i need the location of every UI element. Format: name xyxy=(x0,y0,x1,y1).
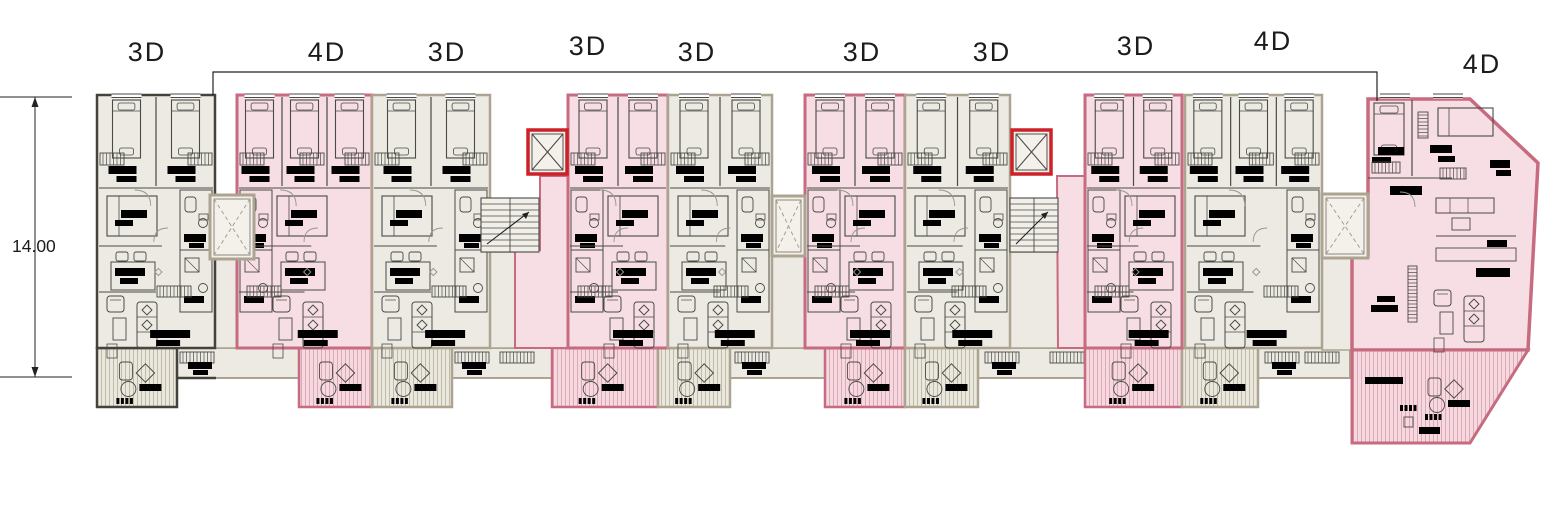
redacted-label xyxy=(391,398,394,404)
redacted-label xyxy=(1208,278,1226,284)
redacted-label xyxy=(931,398,934,404)
window xyxy=(1143,93,1173,99)
balcony-deck xyxy=(825,348,905,407)
redacted-label xyxy=(1244,176,1264,182)
redacted-label xyxy=(332,166,360,174)
unit-plan-3d-0 xyxy=(97,93,215,359)
redacted-label xyxy=(984,243,999,248)
redacted-label xyxy=(1247,330,1287,338)
redacted-label xyxy=(812,234,834,242)
redacted-label xyxy=(291,210,317,218)
floor-plan: 14.003D4D3D3D3D3D3D3D4D4D xyxy=(0,0,1553,530)
unit-plan-4d-8 xyxy=(1185,93,1322,359)
bed xyxy=(113,100,141,158)
balcony-deck xyxy=(1182,348,1258,407)
window xyxy=(1380,93,1410,99)
dim-arrow-up xyxy=(32,97,39,107)
redacted-label xyxy=(321,398,324,404)
redacted-label xyxy=(862,166,890,174)
window xyxy=(290,93,320,99)
redacted-label xyxy=(1496,170,1511,176)
redacted-label xyxy=(121,398,124,404)
redacted-label xyxy=(684,176,704,182)
balcony-deck xyxy=(372,348,452,407)
dim-arrow-down xyxy=(32,367,39,377)
redacted-label xyxy=(130,398,133,404)
window xyxy=(1433,93,1463,99)
redacted-label xyxy=(686,220,704,226)
window xyxy=(1284,93,1314,99)
redacted-label xyxy=(390,220,408,226)
elevator-shaft xyxy=(1322,194,1368,258)
balcony-pink xyxy=(299,348,372,407)
redacted-label xyxy=(728,166,756,174)
window xyxy=(815,93,845,99)
redacted-label xyxy=(1118,398,1121,404)
redacted-label xyxy=(1377,296,1395,302)
redacted-label xyxy=(339,384,361,391)
redacted-label xyxy=(250,176,270,182)
redacted-label xyxy=(340,176,360,182)
bed xyxy=(1144,100,1172,158)
bed xyxy=(1194,100,1222,158)
redacted-label xyxy=(1114,398,1117,404)
floor-plan-svg: 14.003D4D3D3D3D3D3D3D4D4D xyxy=(0,0,1553,530)
redacted-label xyxy=(936,398,939,404)
redacted-label xyxy=(583,398,586,404)
redacted-label xyxy=(1365,377,1403,384)
redacted-label xyxy=(844,398,847,404)
unit-type-label: 3D xyxy=(973,37,1012,67)
balcony-deck xyxy=(552,348,658,407)
redacted-label xyxy=(698,384,720,391)
redacted-label xyxy=(746,243,761,248)
redacted-label xyxy=(400,398,403,404)
redacted-label xyxy=(1200,398,1203,404)
redacted-label xyxy=(1223,384,1245,391)
redacted-label xyxy=(139,384,161,391)
redacted-label xyxy=(974,176,994,182)
elevator-shaft-red xyxy=(528,130,567,174)
redacted-label xyxy=(958,340,982,346)
bed xyxy=(732,100,760,158)
redacted-label xyxy=(168,166,196,174)
dimension-label: 14.00 xyxy=(12,236,56,256)
redacted-label xyxy=(619,340,643,346)
redacted-label xyxy=(575,234,597,242)
redacted-label xyxy=(1133,220,1151,226)
bed xyxy=(388,100,416,158)
redacted-label xyxy=(431,340,455,346)
balcony-deck xyxy=(905,348,978,407)
redacted-label xyxy=(1487,240,1507,247)
unit-type-label: 3D xyxy=(678,37,717,67)
redacted-label xyxy=(923,268,953,276)
unit-type-label: 4D xyxy=(308,37,347,67)
redacted-label xyxy=(1476,268,1510,277)
redacted-label xyxy=(1209,210,1235,218)
balcony xyxy=(658,348,730,407)
redacted-label xyxy=(992,362,1016,369)
redacted-label xyxy=(1434,414,1437,420)
redacted-label xyxy=(285,220,303,226)
bed xyxy=(866,100,894,158)
redacted-label xyxy=(858,398,861,404)
dimension: 14.00 xyxy=(0,97,72,377)
redacted-label xyxy=(462,362,486,369)
redacted-label xyxy=(928,278,946,284)
redacted-label xyxy=(747,370,762,375)
window xyxy=(112,93,142,99)
redacted-label xyxy=(290,278,308,284)
unit-plan-3d-5 xyxy=(805,93,905,359)
bed xyxy=(336,100,364,158)
redacted-label xyxy=(1148,176,1168,182)
elevator-shaft xyxy=(772,196,805,256)
redacted-label xyxy=(121,210,147,218)
redacted-label xyxy=(109,166,137,174)
redacted-label xyxy=(622,210,648,218)
staircase xyxy=(481,198,539,252)
redacted-label xyxy=(384,166,412,174)
redacted-label xyxy=(396,398,399,404)
elevator-shaft-red xyxy=(1012,130,1051,174)
redacted-label xyxy=(1138,278,1156,284)
bed xyxy=(917,100,945,158)
redacted-label xyxy=(676,166,704,174)
redacted-label xyxy=(1414,405,1417,411)
redacted-label xyxy=(1129,330,1169,338)
corridor-pink xyxy=(1057,176,1085,348)
redacted-label xyxy=(1198,176,1218,182)
redacted-label xyxy=(1272,362,1296,369)
redacted-label xyxy=(592,398,595,404)
window xyxy=(245,93,275,99)
redacted-label xyxy=(1490,160,1510,168)
redacted-label xyxy=(1405,405,1408,411)
redacted-label xyxy=(1091,166,1119,174)
redacted-label xyxy=(1092,234,1114,242)
redacted-label xyxy=(945,384,967,391)
redacted-label xyxy=(588,398,591,404)
redacted-label xyxy=(686,268,716,276)
unit-type-label: 3D xyxy=(128,37,167,67)
window xyxy=(578,93,608,99)
redacted-label xyxy=(1439,414,1442,420)
balcony-deck xyxy=(299,348,372,407)
window xyxy=(628,93,658,99)
balcony-deck xyxy=(658,348,730,407)
redacted-label xyxy=(856,340,880,346)
unit-type-label: 3D xyxy=(843,37,882,67)
redacted-label xyxy=(1253,340,1277,346)
redacted-label xyxy=(675,398,678,404)
redacted-label xyxy=(849,398,852,404)
redacted-label xyxy=(684,398,687,404)
redacted-label xyxy=(929,210,955,218)
redacted-label xyxy=(613,330,653,338)
redacted-label xyxy=(120,278,138,284)
redacted-label xyxy=(1378,147,1404,155)
redacted-label xyxy=(850,330,890,338)
redacted-label xyxy=(575,166,603,174)
redacted-label xyxy=(150,330,190,338)
redacted-label xyxy=(464,243,479,248)
bed xyxy=(172,100,200,158)
redacted-label xyxy=(1109,398,1112,404)
redacted-label xyxy=(922,398,925,404)
bed xyxy=(680,100,708,158)
redacted-label xyxy=(858,278,876,284)
redacted-label xyxy=(625,166,653,174)
redacted-label xyxy=(459,234,481,242)
window xyxy=(1239,93,1269,99)
redacted-label xyxy=(115,220,133,226)
redacted-label xyxy=(176,176,196,182)
redacted-label xyxy=(298,330,338,338)
redacted-label xyxy=(913,166,941,174)
window xyxy=(1094,93,1124,99)
redacted-label xyxy=(979,234,1001,242)
redacted-label xyxy=(1205,398,1208,404)
redacted-label xyxy=(859,210,885,218)
balcony xyxy=(97,348,177,407)
redacted-label xyxy=(715,330,755,338)
redacted-label xyxy=(952,330,992,338)
balcony xyxy=(905,348,978,407)
unit-plan-4d-end xyxy=(1352,93,1538,444)
bed xyxy=(579,100,607,158)
unit-plan-3d-6 xyxy=(905,93,1010,359)
balcony-pink xyxy=(825,348,905,407)
redacted-label xyxy=(867,384,889,391)
unit-plan-3d-7 xyxy=(1085,93,1182,359)
redacted-label xyxy=(721,340,745,346)
redacted-label xyxy=(1281,166,1309,174)
unit-plan-4d-1 xyxy=(237,93,372,359)
redacted-label xyxy=(316,398,319,404)
redacted-label xyxy=(692,210,718,218)
redacted-label xyxy=(602,384,624,391)
redacted-label xyxy=(405,398,408,404)
redacted-label xyxy=(184,234,206,242)
redacted-label xyxy=(921,176,941,182)
redacted-label xyxy=(680,398,683,404)
window xyxy=(1193,93,1223,99)
elevator-shaft xyxy=(210,195,254,259)
redacted-label xyxy=(467,370,482,375)
redacted-label xyxy=(633,176,653,182)
redacted-label xyxy=(242,166,270,174)
bed xyxy=(291,100,319,158)
redacted-label xyxy=(621,278,639,284)
bed xyxy=(816,100,844,158)
window xyxy=(916,93,946,99)
redacted-label xyxy=(1430,145,1452,153)
elevator-walls xyxy=(1322,194,1368,258)
redacted-label xyxy=(1296,243,1311,248)
redacted-label xyxy=(1430,414,1433,420)
redacted-label xyxy=(1203,268,1233,276)
bed xyxy=(970,100,998,158)
balcony xyxy=(372,348,452,407)
redacted-label xyxy=(1390,186,1422,195)
redacted-label xyxy=(1133,268,1163,276)
redacted-label xyxy=(425,330,465,338)
redacted-label xyxy=(1448,400,1470,407)
bed xyxy=(1240,100,1268,158)
redacted-label xyxy=(451,176,471,182)
redacted-label xyxy=(1425,414,1428,420)
redacted-label xyxy=(583,176,603,182)
redacted-label xyxy=(392,176,412,182)
redacted-label xyxy=(295,176,315,182)
redacted-label xyxy=(1203,220,1221,226)
unit-plan-3d-2 xyxy=(372,93,490,359)
redacted-label xyxy=(812,166,840,174)
redacted-label xyxy=(443,166,471,174)
redacted-label xyxy=(579,398,582,404)
balcony-deck xyxy=(97,348,177,407)
unit-type-label: 3D xyxy=(1117,31,1156,61)
redacted-label xyxy=(156,340,180,346)
unit-labels: 3D4D3D3D3D3D3D3D4D4D xyxy=(128,26,1502,79)
redacted-label xyxy=(189,243,204,248)
window xyxy=(171,93,201,99)
unit-type-label: 4D xyxy=(1463,49,1502,79)
redacted-label xyxy=(616,220,634,226)
redacted-label xyxy=(1139,210,1165,218)
balcony-pink xyxy=(1085,348,1182,407)
redacted-label xyxy=(325,398,328,404)
redacted-label xyxy=(742,362,766,369)
redacted-label xyxy=(414,384,436,391)
redacted-label xyxy=(820,176,840,182)
redacted-label xyxy=(1132,384,1154,391)
redacted-label xyxy=(193,370,208,375)
unit-type-label: 3D xyxy=(569,31,608,61)
redacted-label xyxy=(1214,398,1217,404)
balcony-pink xyxy=(552,348,658,407)
elevator-walls xyxy=(210,195,254,259)
redacted-label xyxy=(1099,176,1119,182)
redacted-label xyxy=(1209,398,1212,404)
balcony xyxy=(1182,348,1258,407)
bed xyxy=(1285,100,1313,158)
redacted-label xyxy=(870,176,890,182)
unit-plan-3d-3 xyxy=(568,93,668,359)
redacted-label xyxy=(1140,166,1168,174)
redacted-label xyxy=(1409,405,1412,411)
redacted-label xyxy=(1419,427,1440,434)
window xyxy=(969,93,999,99)
redacted-label xyxy=(125,398,128,404)
window xyxy=(731,93,761,99)
staircase xyxy=(1010,198,1058,252)
redacted-label xyxy=(390,268,420,276)
redacted-label xyxy=(287,166,315,174)
redacted-label xyxy=(1438,156,1455,162)
window xyxy=(865,93,895,99)
redacted-label xyxy=(689,398,692,404)
redacted-label xyxy=(1371,305,1398,312)
redacted-label xyxy=(1123,398,1126,404)
redacted-label xyxy=(997,370,1012,375)
redacted-label xyxy=(116,398,119,404)
window xyxy=(335,93,365,99)
redacted-label xyxy=(736,176,756,182)
unit-type-label: 3D xyxy=(428,37,467,67)
unit-plan-3d-4 xyxy=(668,93,772,359)
window xyxy=(679,93,709,99)
bed xyxy=(447,100,475,158)
redacted-label xyxy=(1289,176,1309,182)
redacted-label xyxy=(304,340,328,346)
redacted-label xyxy=(1277,370,1292,375)
bed xyxy=(246,100,274,158)
window xyxy=(387,93,417,99)
redacted-label xyxy=(966,166,994,174)
redacted-label xyxy=(1236,166,1264,174)
redacted-label xyxy=(330,398,333,404)
redacted-label xyxy=(117,176,137,182)
bed xyxy=(1095,100,1123,158)
redacted-label xyxy=(741,234,763,242)
redacted-label xyxy=(188,362,212,369)
redacted-label xyxy=(853,220,871,226)
redacted-label xyxy=(853,398,856,404)
redacted-label xyxy=(1190,166,1218,174)
corridor xyxy=(772,256,805,348)
redacted-label xyxy=(115,268,145,276)
bed xyxy=(629,100,657,158)
redacted-label xyxy=(395,278,413,284)
redacted-label xyxy=(927,398,930,404)
unit-type-label: 4D xyxy=(1254,26,1293,56)
redacted-label xyxy=(1135,340,1159,346)
window xyxy=(446,93,476,99)
redacted-label xyxy=(1291,234,1313,242)
redacted-label xyxy=(1400,405,1403,411)
redacted-label xyxy=(691,278,709,284)
redacted-label xyxy=(923,220,941,226)
redacted-label xyxy=(396,210,422,218)
